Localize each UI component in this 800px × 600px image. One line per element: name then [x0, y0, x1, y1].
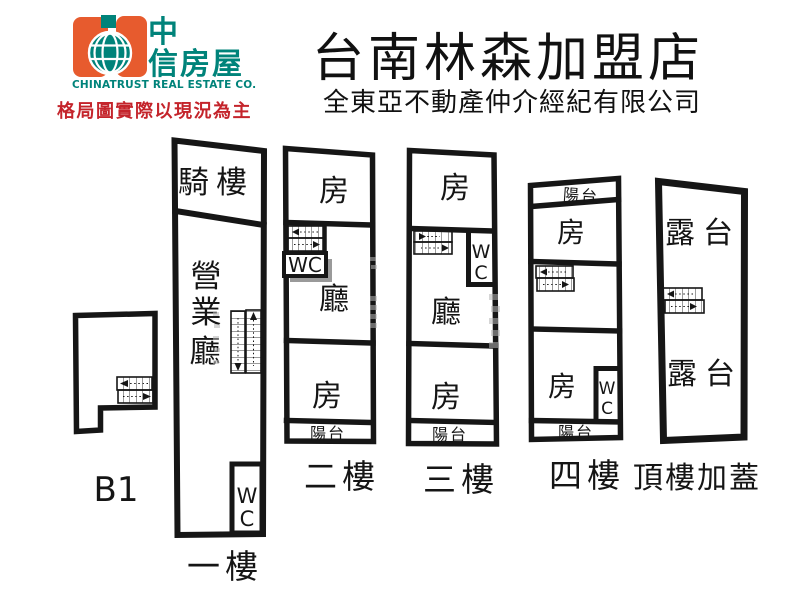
f3-wall-living — [409, 344, 496, 347]
plan-f4: 陽台 房 房 W C 陽台 四樓 — [531, 179, 626, 496]
f2-room-bottom-label: 房 — [312, 379, 342, 414]
f3-wc-label-w: W — [472, 241, 491, 263]
roof-terrace-top-label: 露台 — [665, 216, 741, 251]
f3-balcony-label: 陽台 — [432, 425, 468, 444]
f3-room-bottom-label: 房 — [431, 380, 461, 415]
plan-f1: 騎樓 營 業 廳 W C 一樓 — [175, 141, 265, 587]
f4-wall-balcony-bottom — [532, 421, 621, 423]
f3-stairs-icon — [414, 231, 452, 254]
floorplan-flyer: 中 信房屋 CHINATRUST REAL ESTATE CO. 格局圖實際以現… — [0, 0, 800, 600]
b1-label: B1 — [94, 470, 139, 510]
f4-wall-room-top — [531, 262, 619, 265]
f2-wall-living — [287, 341, 374, 344]
f1-wc-label-w: W — [237, 484, 258, 508]
f2-living-label: 廳 — [319, 282, 349, 317]
f4-wall-mid — [532, 329, 620, 331]
f4-balcony-bottom-label: 陽台 — [558, 423, 594, 442]
roof-terrace-bottom-label: 露台 — [667, 357, 743, 392]
f2-wall-room-top — [286, 223, 373, 226]
f3-room-top-label: 房 — [440, 171, 470, 206]
f2-wc-label: WC — [288, 253, 322, 277]
f4-floor-name: 四樓 — [549, 456, 625, 495]
f2-wall-balcony — [287, 421, 374, 423]
floorplans-drawing: B1 騎樓 營 業 廳 W C 一樓 — [0, 0, 800, 600]
plan-roof: 露台 露台 頂樓加蓋 — [633, 182, 761, 497]
plan-b1: B1 — [76, 314, 156, 511]
f1-arcade-wall — [176, 211, 264, 225]
b1-stairs-icon — [117, 377, 153, 403]
f1-wc-label-c: C — [240, 507, 255, 531]
f2-room-top-label: 房 — [319, 174, 349, 209]
f3-floor-name: 三樓 — [423, 460, 499, 499]
f1-arcade-label: 騎樓 — [178, 165, 254, 201]
f3-wc-label-c: C — [474, 262, 487, 284]
f4-room-bottom-label: 房 — [548, 370, 576, 403]
f2-balcony-label: 陽台 — [310, 424, 346, 443]
f3-living-label: 廳 — [431, 295, 461, 330]
roof-floor-name: 頂樓加蓋 — [633, 461, 761, 496]
f4-stairs-icon — [536, 266, 574, 291]
f1-floor-name: 一樓 — [187, 547, 263, 586]
b1-outline — [76, 314, 156, 432]
roof-stairs-icon — [663, 288, 704, 313]
f2-stairs-icon — [288, 226, 324, 251]
f4-wc-label-w: W — [599, 379, 616, 399]
f3-wall-balcony — [409, 421, 496, 423]
f1-stairs-icon — [231, 310, 261, 373]
f1-hall-char1: 營 — [191, 259, 222, 295]
f4-wc-label-c: C — [601, 399, 613, 419]
f2-floor-name: 二樓 — [304, 457, 380, 496]
f4-room-top-label: 房 — [557, 216, 585, 249]
f4-balcony-top-label: 陽台 — [562, 185, 599, 206]
plan-f3: 房 W C 廳 房 陽台 三樓 — [409, 151, 500, 500]
plan-f2: 房 WC 廳 房 陽台 二樓 — [284, 149, 380, 497]
